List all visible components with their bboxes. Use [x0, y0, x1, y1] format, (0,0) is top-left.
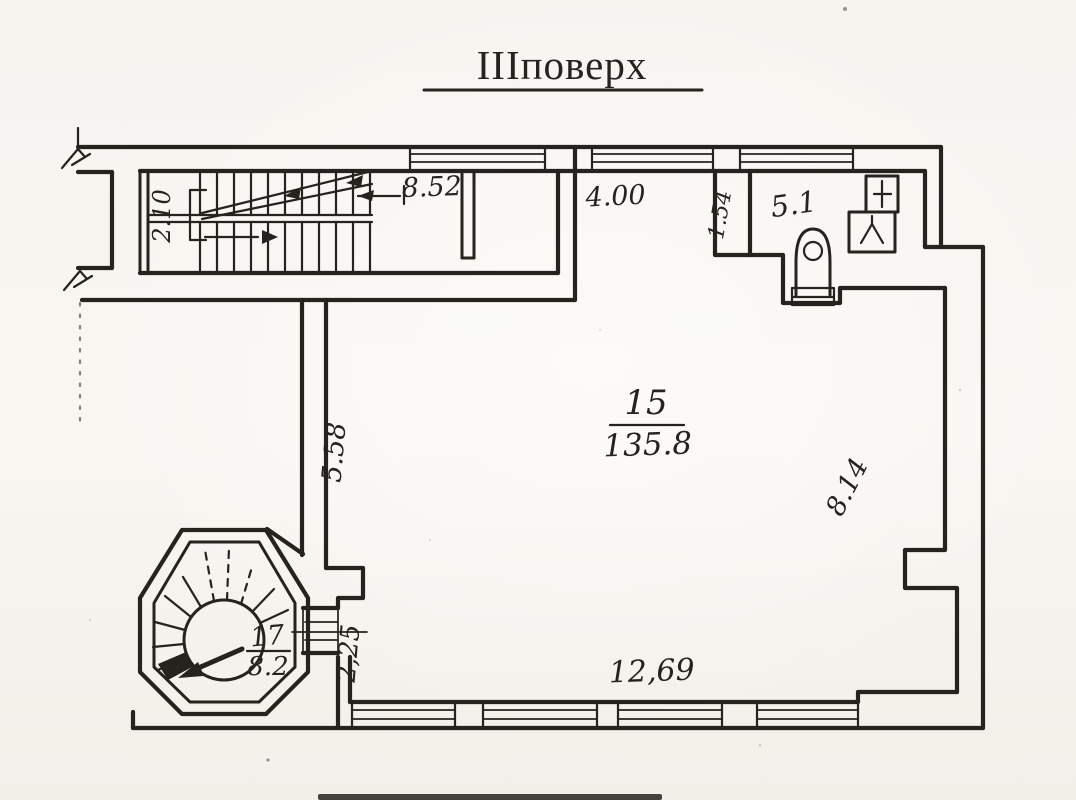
scanned-floor-plan-page: ІІІповерх [0, 0, 1076, 800]
dimension-west-wall: 5.58 [316, 421, 352, 484]
walls [78, 128, 983, 728]
stair-arrow-icon [262, 230, 278, 244]
window-icon [757, 702, 858, 728]
room-number: 15 [624, 383, 667, 423]
room-number: 17 [249, 620, 287, 654]
dimension-stair-hall: 8.52 [358, 171, 462, 204]
tower-room-label: 17 8.2 [247, 620, 290, 682]
drawing-title: ІІІповерх [424, 42, 702, 90]
sink-icon [866, 176, 898, 212]
window-icon [410, 147, 545, 171]
shower-tray-icon [849, 212, 895, 252]
labels: 15 135.8 17 8.2 5.1 8.52 2.10 4.00 1.54 … [148, 171, 875, 691]
stairwell-landing-edge [462, 171, 474, 258]
windows-north [410, 147, 853, 171]
room-area: 135.8 [603, 425, 693, 464]
dimension-entry-stub: 1.54 [704, 189, 737, 242]
window-icon [592, 147, 713, 171]
page-title: ІІІповерх [477, 42, 648, 88]
dimension-tower-passage: 2,25 [331, 623, 366, 684]
dimension-south-wall: 12,69 [608, 653, 695, 691]
window-icon [618, 702, 722, 728]
dimension-flight-width: 2.10 [148, 189, 176, 243]
window-icon [483, 702, 597, 728]
wall-break-marks [62, 149, 92, 425]
windows-south [352, 702, 858, 728]
toilet-icon [792, 229, 834, 305]
stair-treads [148, 172, 372, 271]
break-mark-icon [64, 271, 92, 290]
stair-direction-lines [202, 171, 372, 244]
dimension-east-wall: 8.14 [820, 453, 875, 521]
floor-plan-drawing: ІІІповерх [0, 0, 1076, 800]
main-room-label: 15 135.8 [603, 383, 693, 465]
scan-artifact [318, 794, 662, 800]
room-area: 8.2 [247, 652, 288, 682]
svg-text:8.52: 8.52 [401, 171, 462, 204]
dimension-north-wall: 4.00 [584, 179, 647, 213]
window-icon [352, 702, 455, 728]
break-mark-icon [62, 149, 90, 168]
window-icon [740, 147, 853, 171]
wc-room-label: 5.1 [768, 184, 818, 224]
